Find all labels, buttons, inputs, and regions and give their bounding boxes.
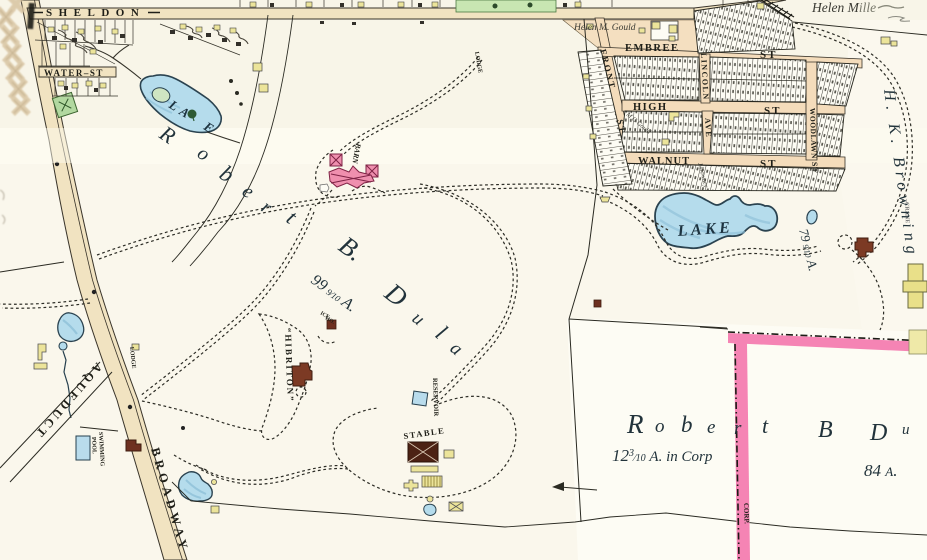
svg-text:ST: ST	[760, 158, 777, 170]
svg-text:EMBREE: EMBREE	[625, 43, 680, 54]
svg-text:RESERVOIR: RESERVOIR	[431, 378, 439, 417]
svg-text:r: r	[734, 418, 742, 439]
svg-text:HIGH: HIGH	[633, 102, 668, 113]
svg-text:Helen Mille: Helen Mille	[811, 0, 876, 15]
svg-text:WALNUT: WALNUT	[638, 156, 690, 167]
svg-text:123⁄10 A. in Corp: 123⁄10 A. in Corp	[612, 446, 713, 465]
svg-text:Helen M. Gould: Helen M. Gould	[573, 23, 636, 33]
svg-text:t: t	[762, 413, 769, 438]
svg-text:o: o	[655, 416, 665, 437]
svg-text:B: B	[818, 417, 833, 443]
svg-text:WATER–ST: WATER–ST	[44, 68, 104, 78]
svg-text:u: u	[902, 422, 910, 438]
svg-text:ST: ST	[760, 49, 777, 61]
svg-text:ST: ST	[810, 162, 819, 174]
svg-text:D: D	[869, 420, 887, 446]
svg-text:AVE: AVE	[703, 118, 713, 139]
svg-text:b: b	[681, 412, 693, 437]
svg-text:ST: ST	[764, 105, 781, 117]
svg-text:WOODLAWN: WOODLAWN	[808, 108, 819, 159]
svg-text:POOL: POOL	[90, 437, 97, 454]
svg-text:R: R	[626, 409, 644, 439]
svg-text:e: e	[707, 417, 715, 438]
svg-text:CORP.: CORP.	[742, 503, 751, 524]
svg-text:SHELDON: SHELDON	[46, 7, 145, 19]
svg-text:84 A.: 84 A.	[864, 461, 897, 480]
